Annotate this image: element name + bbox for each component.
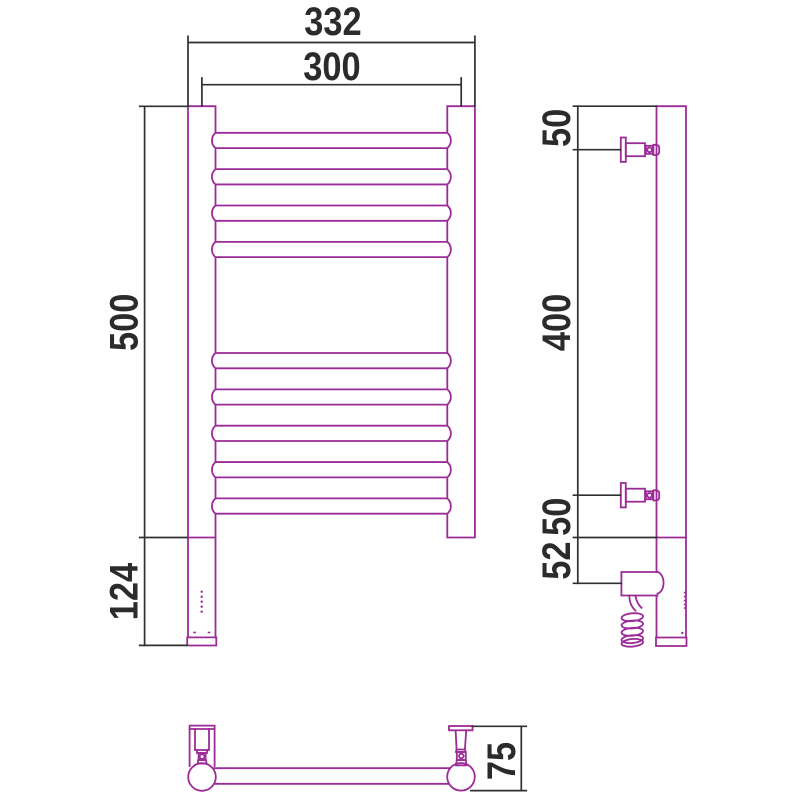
svg-text:50: 50 xyxy=(533,498,578,536)
svg-text:75: 75 xyxy=(479,742,524,780)
svg-text:50: 50 xyxy=(533,109,578,147)
svg-text:124: 124 xyxy=(101,563,146,621)
svg-text:52: 52 xyxy=(533,541,578,579)
svg-text:500: 500 xyxy=(101,294,146,351)
svg-text:400: 400 xyxy=(533,294,578,351)
svg-text:332: 332 xyxy=(304,0,361,44)
svg-text:300: 300 xyxy=(303,44,360,89)
